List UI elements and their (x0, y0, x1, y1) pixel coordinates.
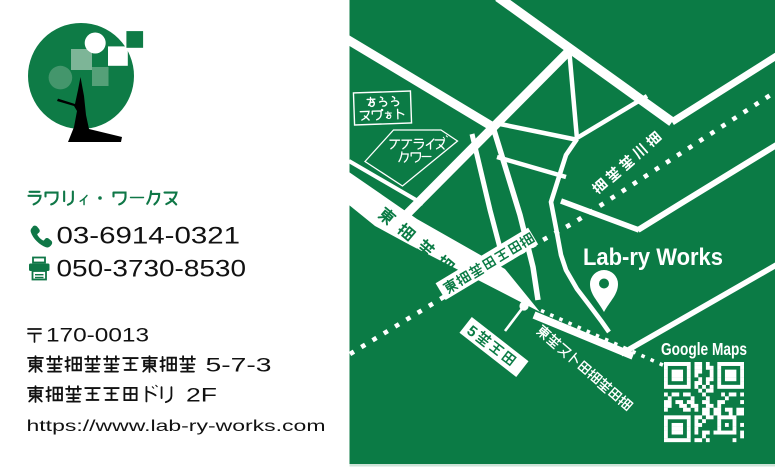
svg-text:170-0013: 170-0013 (46, 326, 149, 347)
svg-text:03-6914-0321: 03-6914-0321 (57, 223, 241, 250)
svg-text:2F: 2F (186, 386, 217, 407)
svg-text:Google Maps: Google Maps (661, 339, 747, 359)
svg-text:Lab-ry Works: Lab-ry Works (583, 244, 723, 271)
svg-text:5-7-3: 5-7-3 (206, 356, 272, 377)
svg-text:050-3730-8530: 050-3730-8530 (57, 256, 246, 283)
svg-text:https://www.lab-ry-works.com: https://www.lab-ry-works.com (27, 418, 326, 435)
